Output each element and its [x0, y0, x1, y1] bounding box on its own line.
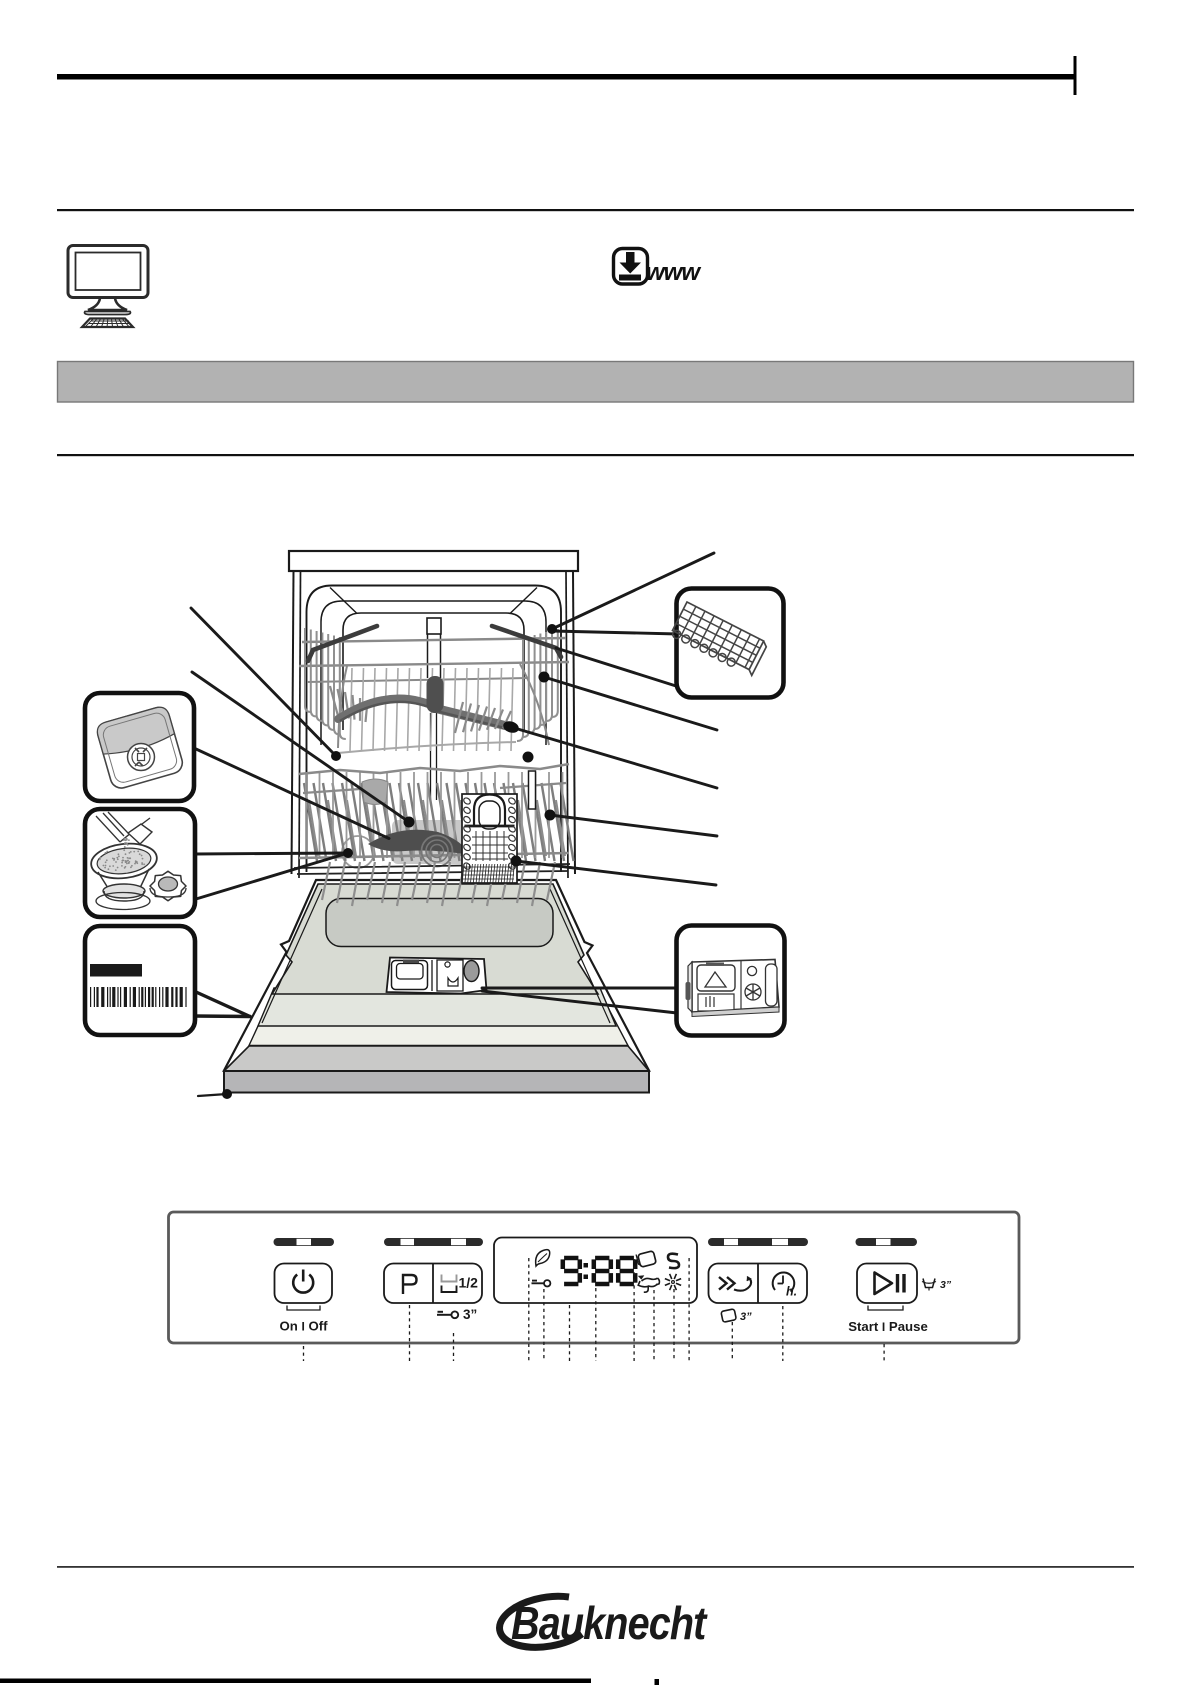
- svg-text:3”: 3”: [740, 1311, 752, 1323]
- svg-text:3”: 3”: [940, 1279, 952, 1291]
- svg-text:1/2: 1/2: [459, 1275, 479, 1291]
- svg-text:3”: 3”: [463, 1307, 477, 1322]
- svg-text:Bauknecht: Bauknecht: [511, 1598, 708, 1649]
- svg-text:www: www: [646, 259, 701, 286]
- svg-text:Start I Pause: Start I Pause: [848, 1319, 928, 1334]
- svg-text:h.: h.: [786, 1285, 797, 1299]
- svg-text:On I Off: On I Off: [279, 1319, 328, 1334]
